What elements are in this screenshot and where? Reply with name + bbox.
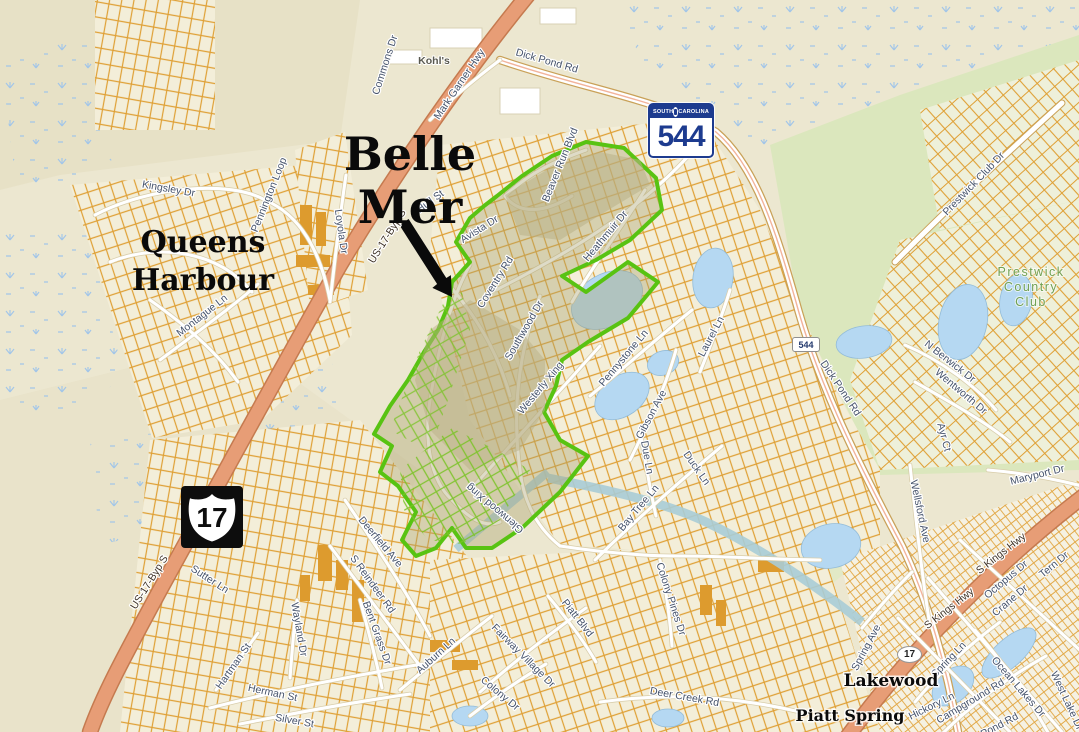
us-17-shield: 17 <box>181 486 243 548</box>
us-17-number: 17 <box>181 502 243 534</box>
piatt-spring-label: Piatt Spring <box>796 706 905 725</box>
shield-state-left: SOUTH <box>653 109 673 115</box>
sc-544-number: 544 <box>650 118 712 156</box>
sc-544-shield: SOUTH CAROLINA 544 <box>648 103 714 158</box>
belle-mer-label: BelleMer <box>344 127 476 234</box>
road-label: Kohl's <box>418 55 450 67</box>
map-screenshot: Dick Pond RdMark Garner HwyCommons DrUS-… <box>0 0 1079 732</box>
parcel-block <box>95 0 215 130</box>
shield-state-right: CAROLINA <box>678 109 709 115</box>
sc-544-shield-band: SOUTH CAROLINA <box>650 105 712 118</box>
us-17-small-marker: 17 <box>897 646 922 663</box>
sc-544-small-marker: 544 <box>792 337 820 352</box>
map-canvas: Dick Pond RdMark Garner HwyCommons DrUS-… <box>0 0 1079 732</box>
lakewood-label: Lakewood <box>844 671 939 691</box>
